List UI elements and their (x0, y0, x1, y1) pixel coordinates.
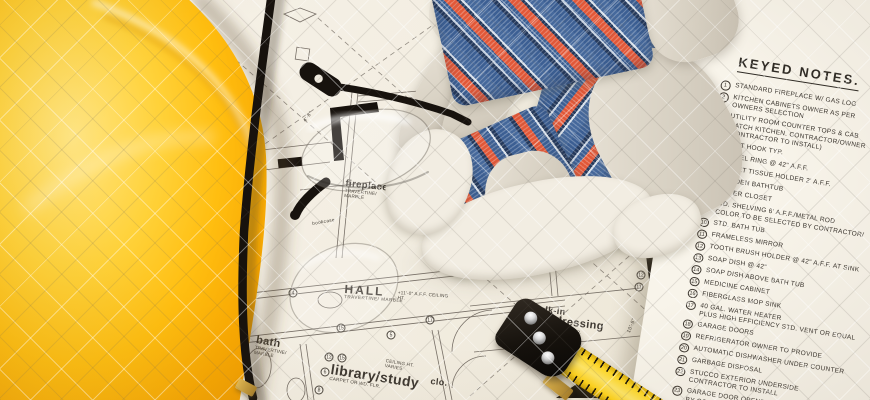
small-props (0, 0, 870, 400)
rivet-icon (522, 309, 540, 327)
construction-blueprint-photo: fireplace TRAVERTINE/ MARBLE bookcase 4'… (0, 0, 870, 400)
rivet-icon (539, 349, 557, 367)
rivet-icon (530, 329, 548, 347)
coil-spring (0, 0, 870, 400)
